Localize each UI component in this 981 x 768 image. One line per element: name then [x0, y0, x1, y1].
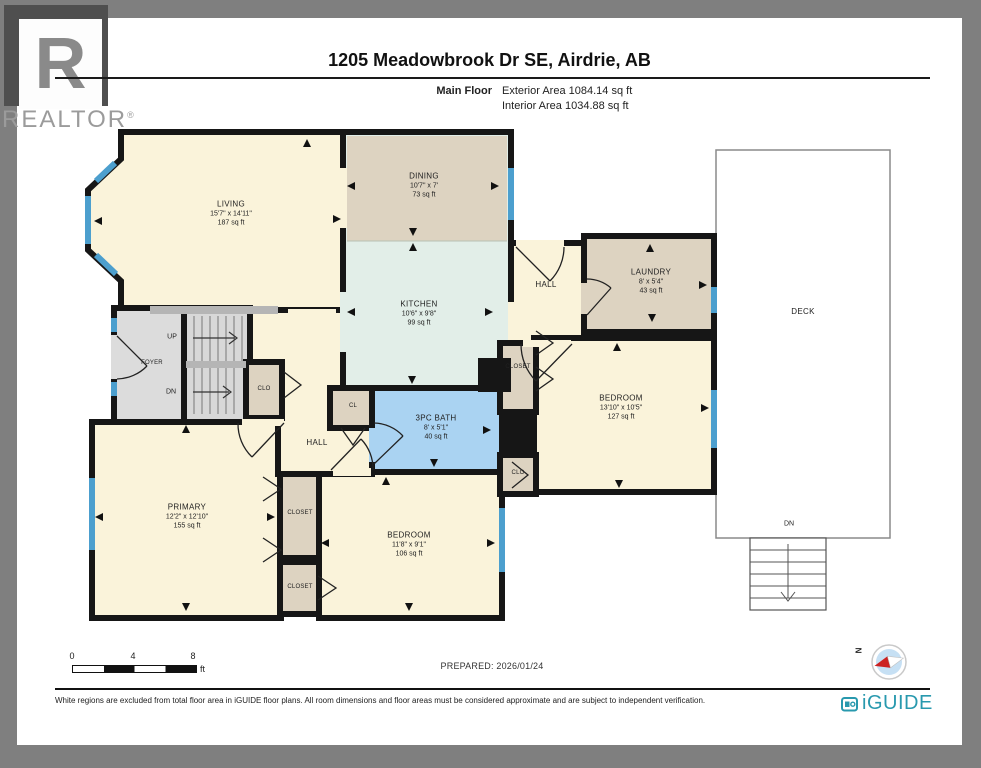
label-deck: DECK: [791, 307, 814, 317]
label-laundry: LAUNDRY8' x 5'4"43 sq ft: [631, 268, 671, 297]
label-closet-right: CLOSET: [505, 364, 530, 372]
floorplan-page: R REALTOR® 1205 Meadowbrook Dr SE, Airdr…: [0, 0, 981, 768]
label-primary: PRIMARY12'2" x 12'10"155 sq ft: [166, 503, 208, 532]
label-hall-upper: HALL: [535, 280, 556, 290]
label-closet-primary-lower: CLOSET: [287, 584, 312, 592]
label-bath: 3PC BATH8' x 5'1"40 sq ft: [416, 414, 457, 443]
label-foyer: FOYER: [141, 360, 163, 368]
label-clo-stairs: CLO: [258, 386, 271, 394]
label-bedroom-bottom: BEDROOM11'8" x 9'1"106 sq ft: [387, 531, 430, 560]
label-cl: CL: [349, 403, 357, 411]
label-clo-right: CLO: [512, 470, 525, 478]
deck-layer: [716, 150, 890, 610]
room-hall-upper-shape: [511, 243, 588, 343]
label-dining: DINING10'7" x 7'73 sq ft: [409, 172, 439, 201]
label-kitchen: KITCHEN10'6" x 9'8"99 sq ft: [400, 300, 437, 329]
label-closet-primary-upper: CLOSET: [287, 510, 312, 518]
label-living: LIVING15'7" x 14'11"187 sq ft: [210, 200, 252, 229]
floorplan-drawing: [0, 0, 981, 768]
label-stairs-dn: DN: [166, 387, 176, 396]
label-deck-dn: DN: [784, 519, 794, 528]
label-bedroom-right: BEDROOM13'10" x 10'5"127 sq ft: [599, 394, 642, 423]
label-stairs-up: UP: [167, 332, 177, 341]
label-hall-center: HALL: [306, 438, 327, 448]
